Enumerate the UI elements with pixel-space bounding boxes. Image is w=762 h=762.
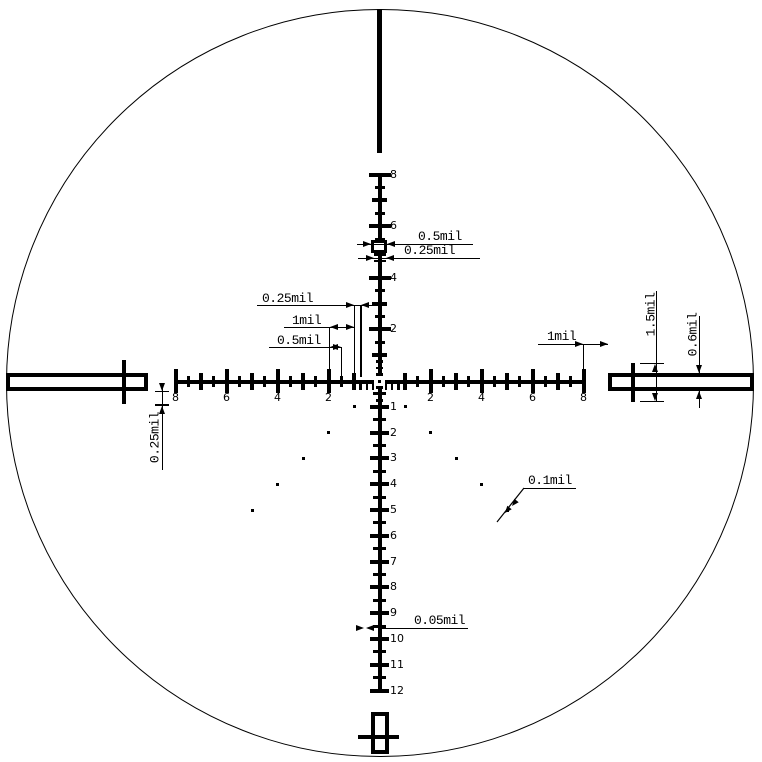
axis-number: 7	[390, 556, 408, 568]
axis-number: 4	[270, 392, 286, 404]
minor-tick	[289, 376, 292, 387]
dim-label: 0.25mil	[404, 244, 455, 257]
minor-tick	[373, 676, 386, 679]
major-tick	[370, 560, 389, 564]
arrow-right-icon	[356, 625, 364, 631]
minor-tick	[518, 376, 521, 387]
dim-label: 0.25mil	[149, 402, 162, 474]
arrow-right-icon	[366, 255, 374, 261]
fine-tick	[374, 253, 386, 255]
axis-number: 5	[390, 504, 408, 516]
major-tick	[370, 456, 389, 460]
dim-label: 1.5mil	[645, 282, 658, 348]
extension-line	[329, 327, 330, 377]
axis-number: 11	[390, 659, 408, 671]
major-tick	[369, 173, 391, 177]
minor-tick	[375, 341, 385, 344]
dim-label: 1mil	[547, 330, 576, 343]
dim-line	[378, 628, 468, 629]
medium-tick	[250, 373, 254, 390]
fine-tick	[376, 360, 383, 362]
major-tick	[370, 405, 389, 409]
fine-tick	[359, 383, 361, 391]
dim-label: 0.5mil	[277, 334, 321, 347]
dim-label: 0.05mil	[414, 614, 465, 627]
minor-tick	[373, 470, 386, 473]
medium-tick	[556, 373, 560, 390]
minor-tick	[340, 376, 343, 387]
bottom-post	[371, 712, 389, 754]
bottom-post-tick	[358, 735, 399, 740]
arrow-right-icon	[333, 344, 341, 350]
medium-tick	[199, 373, 203, 390]
major-tick	[370, 534, 389, 538]
dim-label: 0.1mil	[528, 474, 572, 487]
dim-line	[538, 344, 608, 345]
major-tick	[369, 224, 391, 228]
holdover-dot	[429, 431, 432, 434]
major-tick	[370, 689, 389, 693]
axis-number: 6	[390, 220, 408, 232]
holdover-dot	[404, 405, 407, 408]
major-tick	[174, 369, 178, 393]
fine-tick	[391, 383, 393, 391]
axis-number: 8	[576, 392, 592, 404]
axis-number: 2	[390, 427, 408, 439]
medium-tick	[403, 373, 407, 390]
holdover-dot	[302, 457, 305, 460]
fine-tick	[374, 260, 386, 262]
medium-tick	[505, 373, 509, 390]
reticle-diagram: 864224688642123456789101112 0.5mil 0.25m…	[0, 0, 762, 762]
extension-line	[583, 344, 584, 372]
major-tick	[429, 369, 433, 393]
minor-tick	[493, 376, 496, 387]
dim-label: 0.6mil	[686, 302, 699, 368]
axis-number: 8	[168, 392, 184, 404]
fine-tick	[376, 386, 383, 388]
arrow-right-icon	[363, 241, 371, 247]
arrow-right-icon	[600, 341, 608, 347]
crosshair-upper-line	[378, 173, 382, 376]
medium-tick	[372, 198, 387, 202]
major-tick	[276, 369, 280, 393]
minor-tick	[373, 547, 386, 550]
minor-tick	[467, 376, 470, 387]
minor-tick	[373, 392, 386, 395]
minor-tick	[375, 212, 385, 215]
half-mil-box-marker	[371, 240, 387, 253]
minor-tick	[544, 376, 547, 387]
fine-tick	[376, 399, 383, 401]
minor-tick	[314, 376, 317, 387]
left-post-tick	[122, 360, 127, 404]
major-tick	[369, 327, 391, 331]
arrow-right-icon	[575, 341, 583, 347]
axis-number: 10	[390, 633, 408, 645]
major-tick	[370, 482, 389, 486]
arrow-up-icon	[696, 391, 702, 399]
minor-tick	[375, 289, 385, 292]
axis-number: 3	[390, 452, 408, 464]
arrow-left-icon	[330, 324, 338, 330]
right-post-tick	[631, 363, 636, 402]
extension-line	[640, 401, 664, 402]
minor-tick	[442, 376, 445, 387]
medium-tick	[372, 353, 387, 357]
arrow-up-icon	[652, 364, 658, 372]
major-tick	[369, 276, 391, 280]
fine-tick	[385, 383, 387, 391]
major-tick	[370, 585, 389, 589]
medium-tick	[301, 373, 305, 390]
minor-tick	[373, 573, 386, 576]
minor-tick	[375, 186, 385, 189]
major-tick	[370, 431, 389, 435]
minor-tick	[375, 315, 385, 318]
axis-number: 12	[390, 685, 408, 697]
axis-number: 4	[390, 272, 408, 284]
major-tick	[582, 369, 586, 393]
extension-line	[354, 305, 355, 377]
arrow-down-icon	[652, 393, 658, 401]
holdover-dot	[455, 457, 458, 460]
fine-tick	[366, 383, 368, 391]
arrow-down-icon	[159, 383, 165, 391]
fine-tick	[372, 383, 374, 391]
axis-number: 6	[390, 530, 408, 542]
minor-tick	[569, 376, 572, 387]
major-tick	[480, 369, 484, 393]
leader-arrow-icon	[490, 484, 534, 528]
holdover-dot	[353, 405, 356, 408]
minor-tick	[373, 444, 386, 447]
extension-line	[341, 347, 342, 377]
axis-number: 6	[525, 392, 541, 404]
axis-number: 4	[390, 478, 408, 490]
arrow-right-icon	[346, 324, 354, 330]
minor-tick	[263, 376, 266, 387]
arrow-right-icon	[346, 302, 354, 308]
top-post	[377, 9, 382, 153]
arrow-left-icon	[386, 255, 394, 261]
minor-tick	[373, 650, 386, 653]
axis-number: 2	[390, 323, 408, 335]
dim-label: 0.25mil	[262, 292, 313, 305]
dim-label: 0.5mil	[418, 230, 462, 243]
major-tick	[531, 369, 535, 393]
major-tick	[370, 637, 389, 641]
arrow-left-icon	[361, 302, 369, 308]
extension-line	[360, 305, 361, 377]
dim-line	[358, 258, 480, 259]
minor-tick	[373, 496, 386, 499]
minor-tick	[212, 376, 215, 387]
axis-number: 2	[423, 392, 439, 404]
holdover-dot	[276, 483, 279, 486]
arrow-left-icon	[366, 625, 374, 631]
minor-tick	[238, 376, 241, 387]
minor-tick	[187, 376, 190, 387]
medium-tick	[454, 373, 458, 390]
minor-tick	[373, 521, 386, 524]
axis-number: 8	[390, 169, 408, 181]
fine-tick	[397, 383, 399, 391]
holdover-dot	[480, 483, 483, 486]
left-post	[6, 373, 148, 391]
crosshair-left-line	[174, 380, 375, 384]
axis-number: 4	[474, 392, 490, 404]
arrow-left-icon	[387, 241, 395, 247]
dim-label: 1mil	[292, 314, 321, 327]
fine-tick	[376, 373, 383, 375]
major-tick	[225, 369, 229, 393]
major-tick	[370, 611, 389, 615]
holdover-dot	[327, 431, 330, 434]
minor-tick	[373, 599, 386, 602]
minor-tick	[416, 376, 419, 387]
axis-number: 8	[390, 581, 408, 593]
fine-tick	[376, 367, 383, 369]
medium-tick	[372, 302, 387, 306]
center-dot	[378, 380, 381, 383]
major-tick	[370, 663, 389, 667]
dim-line	[284, 327, 355, 328]
holdover-dot	[251, 509, 254, 512]
minor-tick	[373, 418, 386, 421]
major-tick	[370, 508, 389, 512]
axis-number: 9	[390, 607, 408, 619]
axis-number: 6	[219, 392, 235, 404]
axis-number: 2	[321, 392, 337, 404]
